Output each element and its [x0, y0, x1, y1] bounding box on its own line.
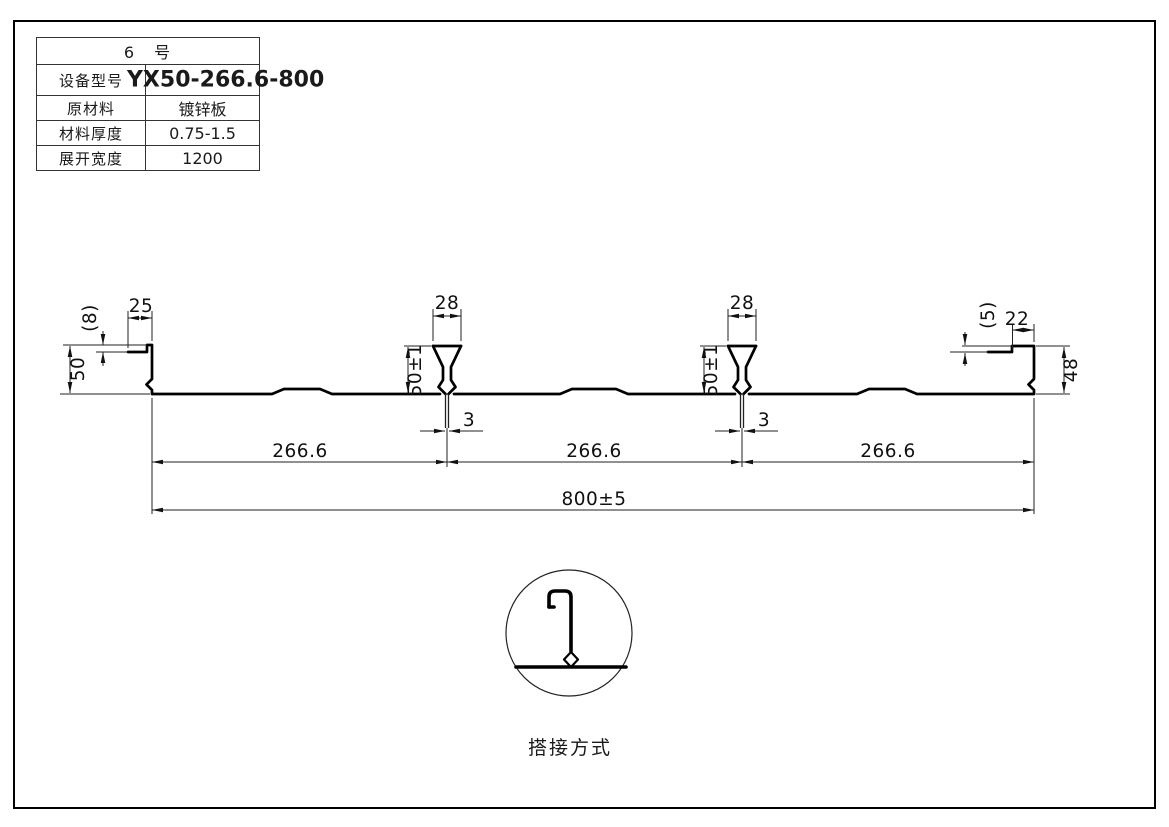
detail-circle — [506, 570, 632, 696]
dim-pitch-1: 266.6 — [272, 441, 327, 462]
dim-pitch-3: 266.6 — [860, 441, 915, 462]
dim-right-lip: 22 — [1005, 309, 1030, 330]
lap-detail — [506, 570, 632, 696]
dim-right-height: 48 — [1061, 358, 1082, 383]
dim-left-height: 50 — [68, 357, 89, 382]
table-row-material: 原材料 镀锌板 — [37, 95, 259, 120]
dim-left-lip: 25 — [129, 296, 154, 317]
drawing-page: 6 号 设备型号 YX50-266.6-800 原材料 镀锌板 材料厚度 0.7… — [0, 0, 1169, 827]
dovetail-rib-2 — [728, 346, 756, 428]
dim-rib2-height: 50±1 — [701, 344, 722, 397]
dim-rib1-height: 50±1 — [405, 344, 426, 397]
material-value: 镀锌板 — [146, 96, 259, 120]
dim-rib1-top: 28 — [435, 293, 460, 314]
dovetail-rib-1 — [433, 346, 461, 428]
profile-outline — [128, 345, 1034, 428]
table-title-row: 6 号 — [37, 38, 259, 64]
table-row-width: 展开宽度 1200 — [37, 145, 259, 170]
dim-pitch-2: 266.6 — [566, 441, 621, 462]
dim-rib2-top: 28 — [730, 293, 755, 314]
dimensions: 50 (8) 25 28 50±1 3 28 50±1 — [60, 293, 1082, 514]
dim-rib2-slot: 3 — [758, 410, 770, 431]
dim-rib1-slot: 3 — [463, 410, 475, 431]
unfold-width-value: 1200 — [146, 149, 259, 168]
unfold-width-label: 展开宽度 — [37, 146, 146, 170]
thickness-value: 0.75-1.5 — [146, 124, 259, 143]
material-label: 原材料 — [37, 96, 146, 120]
dim-overall-width: 800±5 — [561, 489, 626, 510]
sheet-number: 6 号 — [124, 39, 172, 63]
dim-left-step: (8) — [80, 304, 101, 332]
table-row-model: 设备型号 YX50-266.6-800 — [37, 64, 259, 95]
model-value: YX50-266.6-800 — [127, 68, 324, 93]
table-row-thickness: 材料厚度 0.75-1.5 — [37, 120, 259, 145]
dim-right-step: (5) — [978, 301, 999, 329]
spec-table: 6 号 设备型号 YX50-266.6-800 原材料 镀锌板 材料厚度 0.7… — [36, 37, 260, 171]
thickness-label: 材料厚度 — [37, 121, 146, 145]
lap-detail-caption: 搭接方式 — [518, 733, 622, 760]
